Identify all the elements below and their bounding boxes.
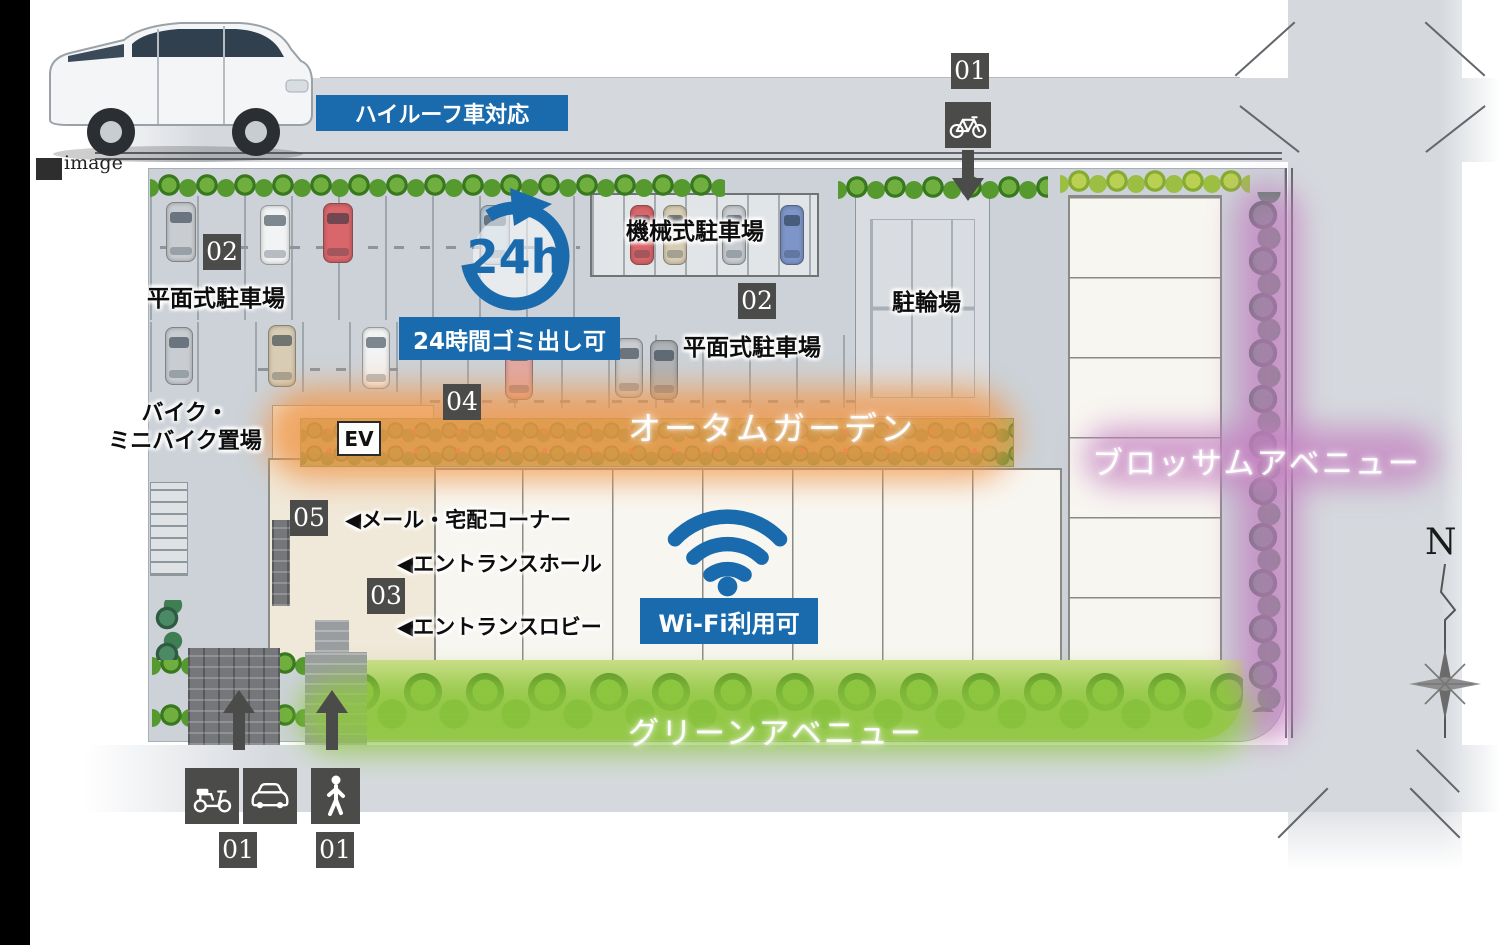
wifi-icon <box>660 492 795 597</box>
street-trees-top2 <box>838 172 1048 200</box>
badge-pedestrian-entrance: 01 <box>316 832 354 868</box>
elevator-label: EV <box>344 427 373 451</box>
flat-parking-left-label: 平面式駐車場 <box>147 279 285 313</box>
bicycle-entrance-box <box>945 102 991 148</box>
callout-arrow-icon: ◀ <box>397 615 413 639</box>
car-graphic <box>260 205 290 265</box>
autumn-garden-label: オータムガーデン <box>628 402 916 450</box>
badge-flat-parking-right: 02 <box>738 283 776 319</box>
compass-north-label: N <box>1425 522 1457 563</box>
pedestrian-entrance-box <box>311 768 360 824</box>
blossom-avenue-label: ブロッサムアベニュー <box>1092 438 1421 483</box>
mail-corner-callout: ◀メール・宅配コーナー <box>345 504 571 534</box>
green-avenue-label: グリーンアベニュー <box>628 708 923 753</box>
stairs <box>150 482 188 576</box>
badge-mail: 05 <box>290 500 328 536</box>
street-trees-top <box>150 170 725 200</box>
photo-caption-block <box>36 158 62 180</box>
scooter-entrance-box <box>185 768 239 824</box>
road-top-edge <box>320 77 1240 78</box>
car-entrance-box <box>243 768 297 824</box>
vehicle-entry-arrowhead <box>223 690 255 713</box>
callout-arrow-icon: ◀ <box>397 552 413 576</box>
entrance-hall-label: エントランスホール <box>413 552 602 576</box>
high-roof-label: ハイルーフ車対応 <box>355 97 529 129</box>
car-graphic <box>780 205 804 265</box>
bicycle-parking-label: 駐輪場 <box>892 283 961 317</box>
car-graphic <box>165 327 193 385</box>
badge-vehicle-entrance: 01 <box>219 832 257 868</box>
pedestrian-entry-arrow <box>326 712 338 750</box>
scooter-icon <box>191 778 233 814</box>
mechanical-parking-label: 機械式駐車場 <box>626 212 764 246</box>
callout-arrow-icon: ◀ <box>345 508 361 532</box>
wifi-label: Wi-Fi利用可 <box>658 604 799 639</box>
left-black-bar <box>0 0 30 945</box>
garbage-label: 24時間ゴミ出し可 <box>413 322 606 356</box>
car-graphic <box>362 327 390 389</box>
hedge-left <box>150 600 188 660</box>
entrance-lobby-label: エントランスロビー <box>413 615 602 639</box>
curb-chamfer <box>1235 21 1296 76</box>
wifi-banner: Wi-Fi利用可 <box>640 598 818 644</box>
bicycle-entry-arrow <box>962 150 974 180</box>
car-graphic <box>268 325 296 387</box>
pedestrian-icon <box>321 774 351 818</box>
car-graphic <box>323 203 353 263</box>
pedestrian-entry-arrowhead <box>316 690 348 713</box>
badge-entrance: 03 <box>367 578 405 614</box>
bicycle-icon <box>949 111 987 139</box>
bike-storage-label: バイク・ ミニバイク置場 <box>100 400 270 456</box>
entrance-stairwell <box>272 520 290 606</box>
24h-text: 24h <box>467 230 564 284</box>
vehicle-entry-arrow <box>233 712 245 750</box>
mail-corner-label: メール・宅配コーナー <box>361 508 571 532</box>
24h-garbage-icon: 24h <box>450 188 580 318</box>
car-icon <box>249 779 291 813</box>
badge-garbage: 04 <box>443 384 481 420</box>
entrance-hall-callout: ◀エントランスホール <box>397 548 602 578</box>
road-bottom <box>85 745 1500 812</box>
photo-caption: image <box>64 152 123 174</box>
street-trees-top3 <box>1060 166 1250 200</box>
entrance-lobby-callout: ◀エントランスロビー <box>397 611 602 641</box>
high-roof-banner: ハイルーフ車対応 <box>316 95 568 131</box>
bike-storage-line2: ミニバイク置場 <box>108 429 262 454</box>
badge-flat-parking-left: 02 <box>203 234 241 270</box>
badge-bicycle-entrance: 01 <box>951 53 989 89</box>
flat-parking-right-label: 平面式駐車場 <box>683 328 821 362</box>
car-graphic <box>166 202 196 262</box>
bike-storage-line1: バイク・ <box>141 401 228 426</box>
north-compass-icon <box>1400 560 1490 740</box>
elevator-box: EV <box>337 421 381 456</box>
garbage-banner: 24時間ゴミ出し可 <box>399 317 620 360</box>
bicycle-entry-arrowhead <box>952 178 984 201</box>
site-plan-canvas: オータムガーデン ブロッサムアベニュー グリーンアベニュー 機械式駐車場 平面式… <box>0 0 1500 945</box>
high-roof-car-photo <box>28 2 318 168</box>
